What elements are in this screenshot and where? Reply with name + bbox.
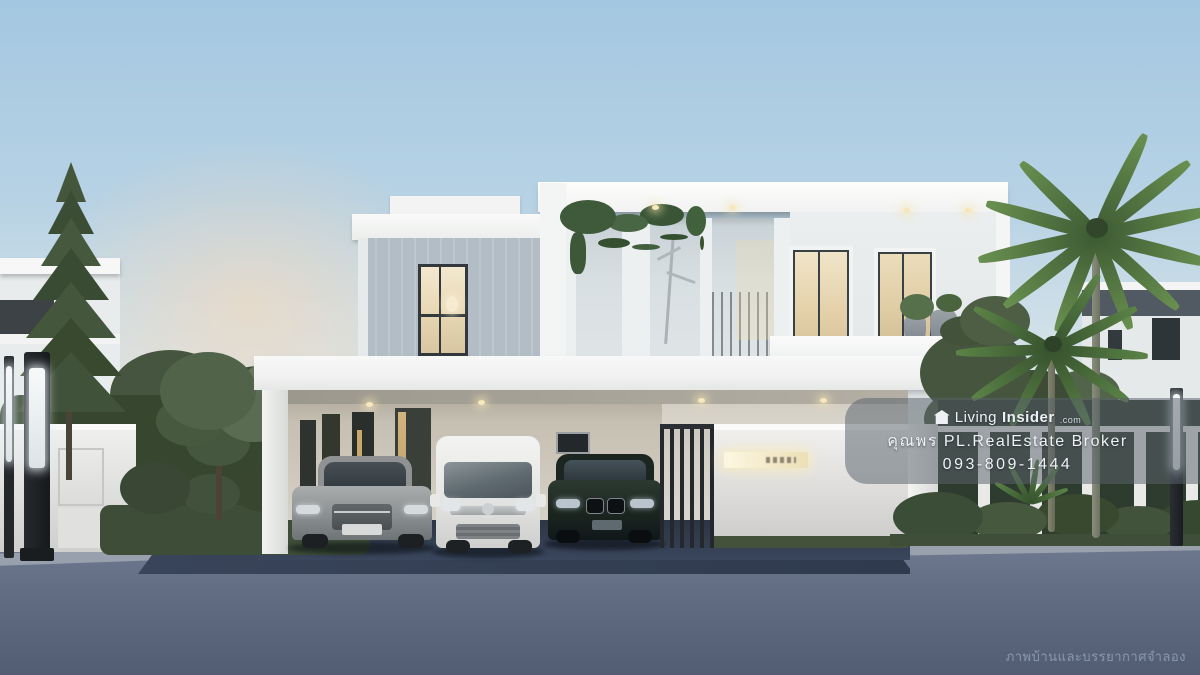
watermark-agent: คุณพร PL.RealEstate Broker <box>887 429 1127 454</box>
lamp-base-left <box>20 548 54 561</box>
sedan-wheel <box>302 534 328 548</box>
left-wing-parapet-upper <box>390 196 520 216</box>
carport-downlight <box>478 400 485 405</box>
wall-picture-frame <box>556 432 590 454</box>
render-scene: LivingInsider.com คุณพร PL.RealEstate Br… <box>0 0 1200 675</box>
minivan-lower-grille <box>456 524 520 539</box>
watermark-panel: LivingInsider.com คุณพร PL.RealEstate Br… <box>845 398 1200 484</box>
brand-insider: Insider <box>1002 409 1055 426</box>
front-gate <box>660 424 714 548</box>
minivan-mirror <box>536 494 546 507</box>
front-gate-rail <box>660 424 714 429</box>
minivan-mirror <box>430 494 440 507</box>
suv-plate <box>592 520 622 530</box>
minivan-emblem <box>482 503 494 515</box>
soffit-downlight <box>903 208 910 213</box>
glass-mullion <box>700 218 712 358</box>
watermark-brand: LivingInsider.com <box>934 409 1081 426</box>
minivan-headlight <box>442 500 460 511</box>
render-disclaimer-caption: ภาพบ้านและบรรยากาศจำลอง <box>1006 646 1186 667</box>
minivan-headlight <box>516 500 534 511</box>
palm-crown-core-small <box>1044 336 1062 352</box>
suv-wheel <box>628 530 652 543</box>
palm-crown-core <box>1086 218 1108 238</box>
soffit-downlight <box>729 205 736 210</box>
sedan-windshield <box>324 462 406 488</box>
hanging-plants-small <box>686 206 706 236</box>
sedan-wheel <box>398 534 424 548</box>
lamp-led-far-left <box>6 366 12 462</box>
left-hedge-row <box>120 462 190 514</box>
carport-column <box>262 390 288 554</box>
left-wing-corner-trim <box>358 238 368 362</box>
suv-kidney-grille <box>607 498 625 514</box>
brand-living: Living <box>955 409 997 426</box>
suv-wheel <box>556 530 580 543</box>
deciduous-tree-trunk <box>216 430 222 520</box>
left-wing-parapet <box>352 214 564 240</box>
suv-windshield <box>564 460 646 480</box>
minivan-windshield <box>444 462 532 498</box>
sedan-headlight <box>404 505 428 514</box>
sedan-headlight <box>296 505 320 514</box>
address-plate-number <box>766 457 796 463</box>
suv-headlight <box>630 499 654 508</box>
deciduous-tree-canopy <box>160 352 256 430</box>
balcony-pot-plants <box>900 294 934 320</box>
suv-kidney-grille <box>586 498 604 514</box>
minivan-wheel <box>508 540 532 553</box>
lamp-led-left <box>29 368 45 468</box>
table-lamp-glow <box>446 296 458 312</box>
home-icon <box>934 410 950 424</box>
carport-downlight <box>366 402 373 407</box>
glass-mullion <box>622 218 650 358</box>
hanging-plants <box>560 200 616 234</box>
neighbor-house-right-window <box>1152 318 1180 360</box>
upstairs-window-left-mullion <box>439 266 441 354</box>
watermark-phone: 093-809-1444 <box>943 456 1073 474</box>
suv-headlight <box>556 499 580 508</box>
balcony-door-left-glass <box>793 250 849 348</box>
front-wall-base-grass <box>714 536 908 548</box>
sedan-plate <box>342 524 382 535</box>
soffit-downlight <box>965 208 972 213</box>
carport-ceiling <box>262 390 908 404</box>
interior-glow <box>736 240 774 340</box>
carport-downlight <box>698 398 705 403</box>
upstairs-window-left <box>418 264 468 356</box>
brand-tld: .com <box>1060 415 1082 425</box>
soffit-downlight <box>652 205 659 210</box>
grass-strip-right <box>890 534 1200 546</box>
left-wall-door <box>58 508 104 548</box>
sedan-grille-chrome <box>334 511 390 513</box>
hanging-vine <box>570 232 586 274</box>
carport-fascia <box>254 356 1010 390</box>
balcony-door-left-mullion <box>818 252 820 346</box>
minivan-wheel <box>446 540 470 553</box>
left-wall-panel <box>58 448 104 506</box>
upstairs-window-left-bar <box>420 314 466 317</box>
porch-downlight <box>820 398 827 403</box>
